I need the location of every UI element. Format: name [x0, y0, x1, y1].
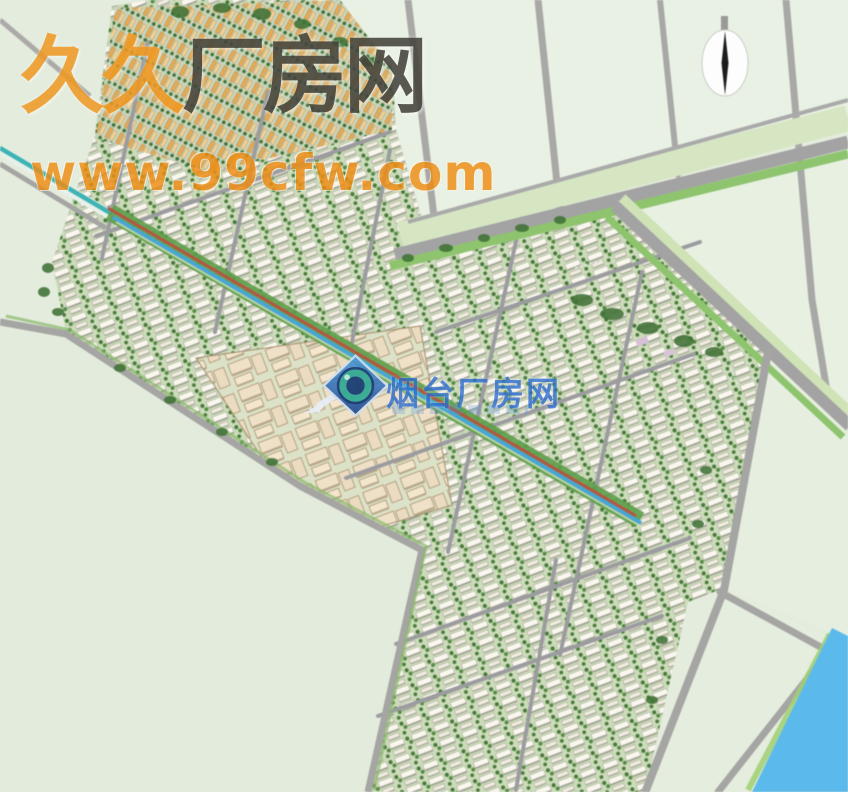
- site-plan-screenshot: 久久厂房网 www.99cfw.com 烟台厂房网: [0, 0, 848, 792]
- yantai-cfw-logo-icon: [300, 350, 396, 425]
- watermark-brand-title: 久久厂房网: [20, 34, 425, 118]
- watermark-brand-url: www.99cfw.com: [30, 144, 496, 202]
- brand-title-part2: 厂房网: [182, 27, 425, 125]
- brand-title-part1: 久久: [20, 27, 182, 125]
- center-watermark: 烟台厂房网: [300, 350, 560, 425]
- center-watermark-subtext-blur: [392, 405, 528, 414]
